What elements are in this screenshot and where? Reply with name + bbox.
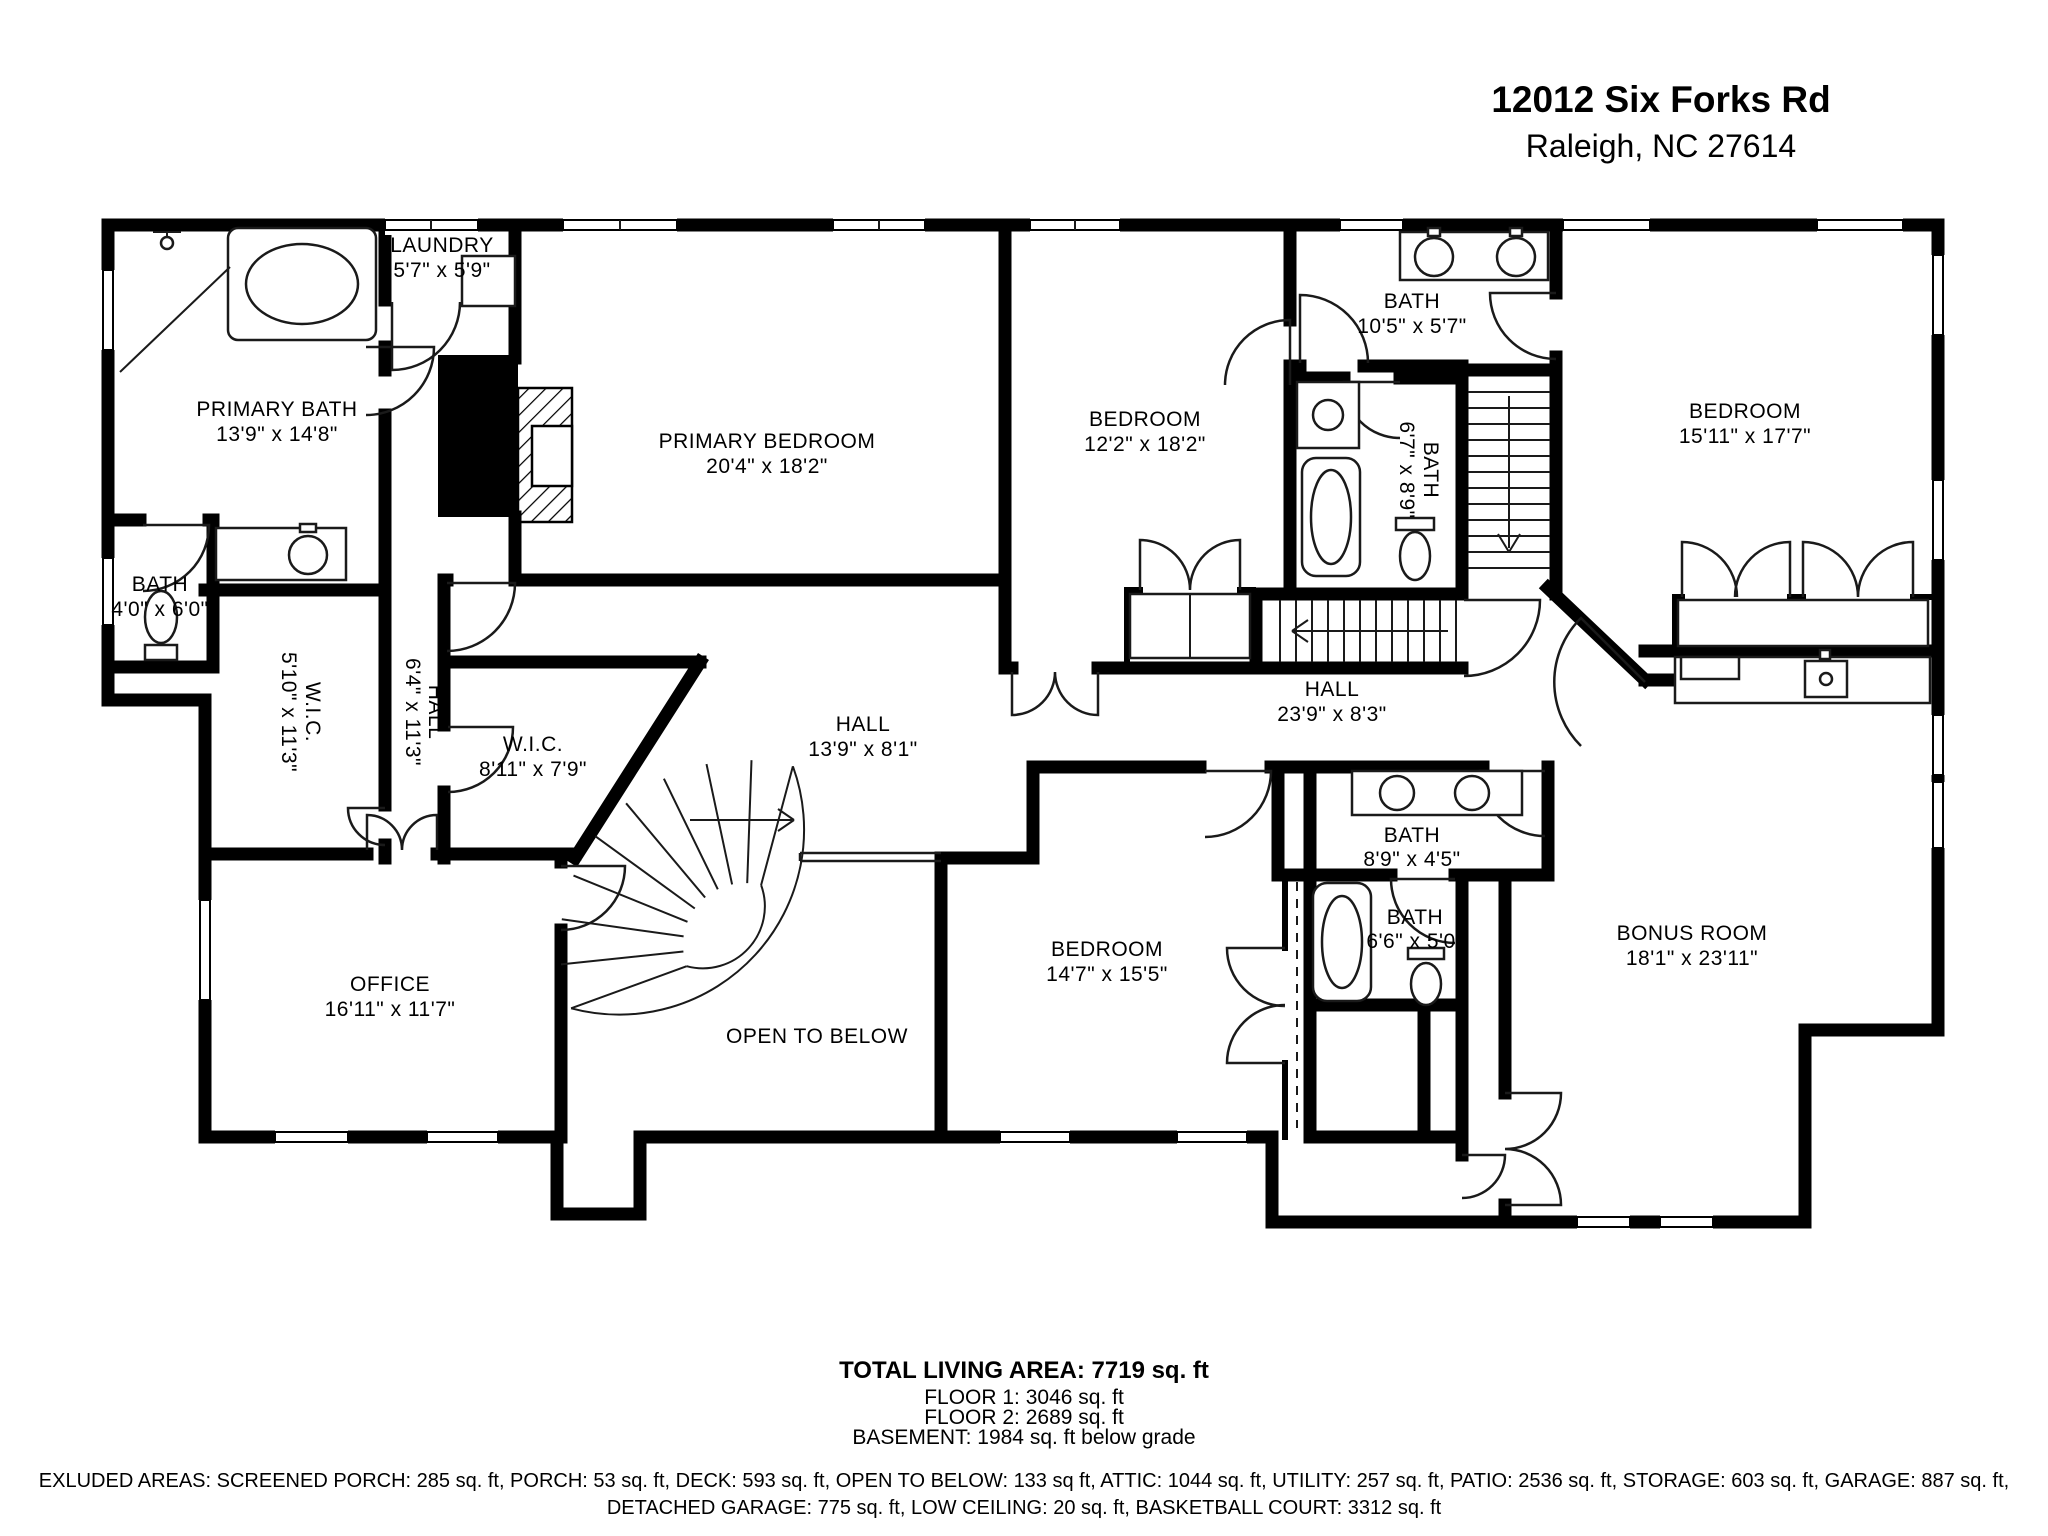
room-dims-bonus-room: 18'1" x 23'11" — [1626, 947, 1758, 970]
door-closet-15 — [1682, 542, 1913, 597]
room-dims-bedroom-14: 14'7" x 15'5" — [1046, 963, 1168, 986]
room-label-bath-89: BATH — [1384, 824, 1440, 847]
room-dims-bedroom-12: 12'2" x 18'2" — [1084, 433, 1206, 456]
room-dims-bath-40: 4'0" x 6'0" — [111, 598, 208, 621]
door-primary-bath — [366, 347, 434, 415]
room-dims-hall-64: 6'4" x 11'3" — [401, 658, 424, 766]
stair-curved — [561, 760, 804, 1014]
footer-group: TOTAL LIVING AREA: 7719 sq. ft FLOOR 1: … — [39, 1357, 2009, 1519]
bathtub-primary-basin — [246, 244, 358, 324]
room-dims-hall-239: 23'9" x 8'3" — [1277, 703, 1387, 726]
excluded-areas-line2: DETACHED GARAGE: 775 sq. ft, LOW CEILING… — [607, 1497, 1442, 1519]
room-dims-hall-139: 13'9" x 8'1" — [808, 738, 918, 761]
room-label-wic-510: W.I.C. — [301, 682, 324, 742]
toilet-bath-67 — [1400, 532, 1430, 580]
interior-walls — [108, 225, 1938, 1222]
excluded-areas-line1: EXLUDED AREAS: SCREENED PORCH: 285 sq. f… — [39, 1470, 2009, 1492]
walls-group — [108, 225, 1938, 1222]
toilet-bath-66 — [1411, 963, 1441, 1005]
room-label-open-to-below: OPEN TO BELOW — [726, 1025, 908, 1048]
faucet-primary — [300, 524, 316, 532]
toilet-tank-bath-67 — [1396, 518, 1434, 530]
room-label-bath-40: BATH — [132, 573, 188, 596]
stair-down-arrow — [1498, 396, 1520, 552]
sink-bath-105-right — [1497, 238, 1535, 276]
room-label-primary-bath: PRIMARY BATH — [196, 398, 357, 421]
room-dims-bedroom-15: 15'11" x 17'7" — [1679, 425, 1811, 448]
stair-up-arrow — [690, 809, 794, 831]
door-primary-bedroom — [447, 583, 515, 651]
chimney-chase — [438, 355, 518, 517]
bathtub-66-basin — [1322, 896, 1362, 988]
sink-bath-67 — [1313, 400, 1343, 430]
room-dims-office: 16'11" x 11'7" — [325, 998, 456, 1021]
faucet-icon — [1428, 228, 1440, 236]
room-dims-primary-bedroom: 20'4" x 18'2" — [706, 455, 828, 478]
door-closet-14-double — [1227, 948, 1285, 1063]
room-label-bath-105: BATH — [1384, 290, 1440, 313]
room-dims-bath-89: 8'9" x 4'5" — [1363, 848, 1460, 871]
room-dims-bath-105: 10'5" x 5'7" — [1357, 315, 1467, 338]
door-bedroom-14 — [1205, 771, 1271, 837]
wetbar-cabinet — [1681, 657, 1739, 679]
vanity-bath-89 — [1352, 771, 1522, 815]
door-bedroom-12 — [1225, 320, 1290, 385]
room-label-bedroom-15: BEDROOM — [1689, 400, 1801, 423]
room-dims-laundry: 5'7" x 5'9" — [393, 259, 490, 282]
total-living-area: TOTAL LIVING AREA: 7719 sq. ft — [839, 1357, 1209, 1384]
floor-plan-page: LAUNDRY 5'7" x 5'9" PRIMARY BATH 13'9" x… — [0, 0, 2048, 1536]
room-label-wic-811: W.I.C. — [503, 733, 563, 756]
bathtub-67-basin — [1311, 470, 1351, 564]
shower-glass — [120, 267, 230, 372]
room-dims-primary-bath: 13'9" x 14'8" — [216, 423, 338, 446]
room-label-laundry: LAUNDRY — [390, 234, 493, 257]
fireplace-firebox — [532, 426, 572, 486]
shower-head-icon — [161, 237, 173, 249]
door-vestibule — [1464, 600, 1540, 676]
room-label-bath-66: BATH — [1387, 906, 1443, 929]
sink-bath-89-left — [1380, 776, 1414, 810]
room-label-primary-bedroom: PRIMARY BEDROOM — [659, 430, 876, 453]
room-label-hall-64: HALL — [424, 685, 447, 740]
basement-area: BASEMENT: 1984 sq. ft below grade — [852, 1426, 1195, 1449]
room-label-bath-67: BATH — [1419, 442, 1442, 498]
room-dims-bath-66: 6'6" x 5'0" — [1366, 930, 1463, 953]
room-label-bedroom-14: BEDROOM — [1051, 938, 1163, 961]
door-closet-12 — [1140, 540, 1240, 590]
room-label-hall-239: HALL — [1305, 678, 1360, 701]
room-label-bonus-room: BONUS ROOM — [1617, 922, 1768, 945]
address-line2: Raleigh, NC 27614 — [1526, 128, 1796, 164]
door-bedroom-12-double — [1012, 672, 1098, 715]
wetbar-faucet — [1820, 650, 1830, 659]
sink-bath-89-right — [1455, 776, 1489, 810]
wetbar-drain — [1820, 673, 1832, 685]
railing — [800, 853, 941, 861]
faucet-icon — [1510, 228, 1522, 236]
address-line1: 12012 Six Forks Rd — [1491, 79, 1830, 120]
room-label-hall-139: HALL — [836, 713, 891, 736]
floor-plan-svg: LAUNDRY 5'7" x 5'9" PRIMARY BATH 13'9" x… — [0, 0, 2048, 1536]
toilet-tank-bath-40 — [145, 645, 177, 660]
room-label-bedroom-12: BEDROOM — [1089, 408, 1201, 431]
sink-bath-105-left — [1415, 238, 1453, 276]
room-dims-wic-510: 5'10" x 11'3" — [277, 652, 300, 772]
room-label-office: OFFICE — [350, 973, 430, 996]
stair-horizontal-run — [1280, 600, 1456, 662]
door-bonus-diagonal — [1554, 618, 1645, 746]
room-dims-wic-811: 8'11" x 7'9" — [479, 758, 587, 781]
header-group: 12012 Six Forks Rd Raleigh, NC 27614 — [1491, 79, 1830, 164]
shower-valve — [153, 232, 181, 237]
closet-15-shelf — [1678, 600, 1928, 646]
windows-group — [98, 215, 1948, 1232]
door-bonus-french — [1505, 1093, 1561, 1205]
room-dims-bath-67: 6'7" x 8'9" — [1395, 421, 1418, 518]
stair-vertical-run — [1468, 392, 1550, 568]
sink-primary — [289, 536, 327, 574]
door-bedroom-15 — [1490, 293, 1556, 359]
